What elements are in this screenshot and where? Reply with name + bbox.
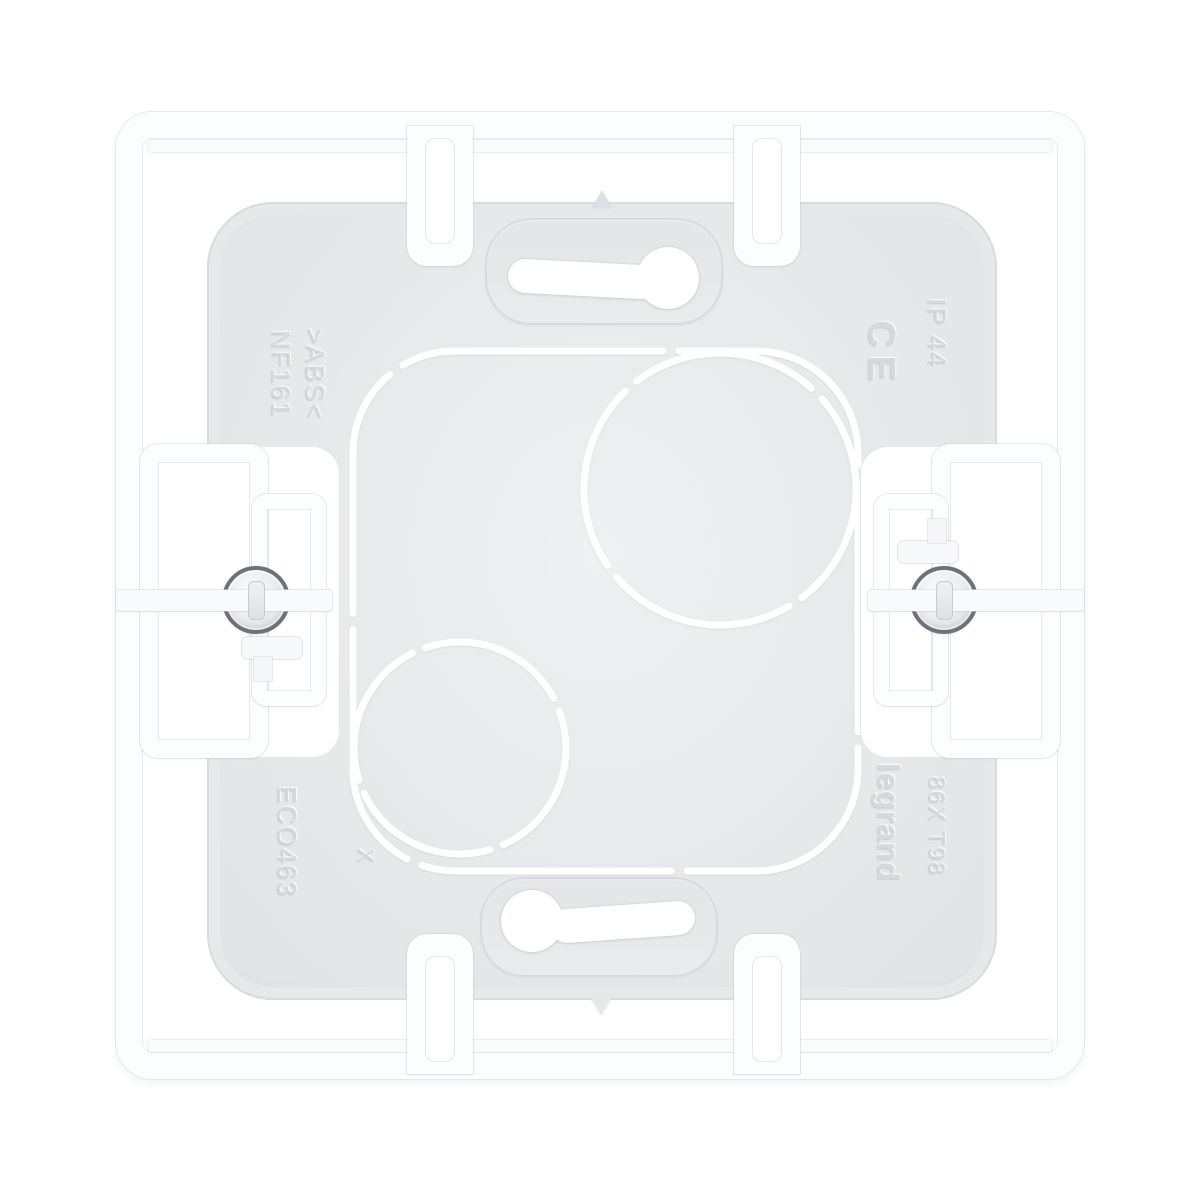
mounting-slot [425,956,455,1062]
retainer-clip-right [898,541,958,563]
product-photo: NF161 >ABS< CE IP 44 ECO463 X legrand 86… [0,0,1200,1200]
screw-clip-left [248,581,265,620]
screw-slot-bar-right [868,590,1084,611]
mounting-tab-top-right [734,126,800,266]
frame-ledge-top [148,140,1052,152]
screw-slot-bar-left [116,590,332,611]
frame-ledge-bottom [148,1040,1052,1052]
mounting-tab-top-left [407,126,473,266]
screw-clip-right [936,581,953,620]
retainer-stem-left [254,657,272,681]
mounting-tab-bottom-right [734,934,800,1074]
retainer-stem-right [928,519,946,543]
mounting-slot [752,956,782,1062]
retainer-clip-left [242,637,302,659]
mounting-slot [425,138,455,244]
mounting-tab-bottom-left [407,934,473,1074]
mounting-slot [752,138,782,244]
